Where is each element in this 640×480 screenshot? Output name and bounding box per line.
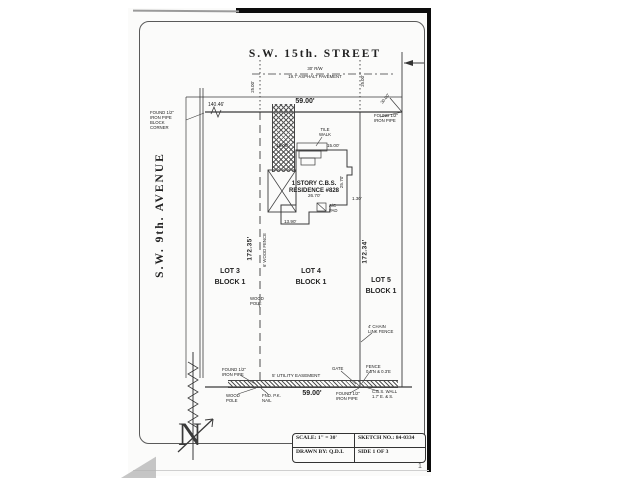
ac-pad-label: A/C PAD [329,203,338,213]
marker-se-iron-pipe: FOUND 1/2" IRON PIPE [336,391,360,401]
dim-house-wing: 13.90' [284,219,296,225]
chain-fence-line2: LINK FENCE [368,329,393,334]
marker-ne-line2: IRON PIPE [374,118,398,123]
lot4-block: BLOCK 1 [286,277,336,288]
title-block-drawn-by: DRAWN BY: Q.D.I. [293,448,355,462]
avenue-edge-lines [186,88,203,378]
dim-house-front-right: 15.00' [327,143,339,149]
dim-west-depth: 172.35' [247,229,256,269]
avenue-name: S.W. 9th. AVENUE [154,150,168,280]
dim-rear-width: 59.00' [292,390,332,398]
marker-se-gate: GATE [332,366,343,371]
tile-walk-label: TILE WALK [314,127,336,137]
gravel-drive-hatch [272,104,295,172]
chain-link-fence-label: 4' CHAIN LINK FENCE [368,324,393,334]
marker-sw-iron-pipe: FOUND 1/2" IRON PIPE [222,367,246,377]
marker-sw-wood-pole: WOOD POLE [226,393,240,403]
wood-pole-line2: POLE [250,301,264,306]
left-arrow-icon [404,60,413,66]
wood-fence-label: 6' WOOD FENCE [262,222,268,278]
se-wall-line2: 1.7' E. & S. [372,394,397,399]
dim-house-side: 25.70' [339,168,345,196]
se-fence-line2: 0.3'N & 0.3'E [366,369,391,374]
lot3-label: LOT 3 BLOCK 1 [205,266,255,288]
marker-ne-iron-pipe: FOUND 1/2" IRON PIPE [374,113,398,123]
marker-nw-line4: CORNER [150,125,174,130]
dim-front-width: 59.00' [285,98,325,106]
block-north-line [205,107,402,117]
compass-north-letter: N [178,417,202,454]
marker-se-fence: FENCE 0.3'N & 0.3'E [366,364,391,374]
ac-pad-line2: PAD [329,208,338,213]
sw-nail-line2: NAIL [262,398,281,403]
dim-east-depth: 172.34' [362,232,371,272]
wood-pole-label: WOOD POLE [250,296,264,306]
title-block-side: SIDE 1 OF 3 [355,448,425,462]
street-name: S.W. 15th. STREET [240,48,390,62]
scan-canvas: S.W. 15th. STREET 30' R/W 19.7' ASPHALT … [0,0,640,480]
lot5-label: LOT 5 BLOCK 1 [356,275,406,297]
marker-se-cbs-wall: C.B.S. WALL 1.7' E. & S. [372,389,397,399]
lot4-name: LOT 4 [286,266,336,277]
tile-walk-line2: WALK [314,132,336,137]
marker-sw-line2: IRON PIPE [222,372,246,377]
dim-block-tie: 140.46' [208,102,224,108]
lot3-name: LOT 3 [205,266,255,277]
title-block-sketch-no: SKETCH NO.: 84-0334 [355,434,425,448]
lot3-block: BLOCK 1 [205,277,255,288]
marker-se-line2: IRON PIPE [336,396,360,401]
lot4-label: LOT 4 BLOCK 1 [286,266,336,288]
street-rw-note: 30' R/W [290,66,340,71]
marker-nw-block-corner: FOUND 1/2" IRON PIPE BLOCK CORNER [150,110,174,131]
lot5-block: BLOCK 1 [356,286,406,297]
street-pavement-note: 19.7' ASPHALT PAVEMENT [275,74,355,79]
title-block-scale: SCALE: 1" = 30' [293,434,355,448]
title-block: SCALE: 1" = 30' SKETCH NO.: 84-0334 DRAW… [292,433,426,463]
ac-pad-outline [317,203,326,211]
survey-linework [0,0,640,480]
dim-house-front-left: 15.00' [276,143,288,149]
dim-rw-left: 25.00' [250,74,256,100]
residence-line1: 1 STORY C.B.S. [283,181,345,188]
utility-easement-label: 5' UTILITY EASEMENT [272,373,320,379]
cbs-wall-hatch [228,380,398,388]
lot5-name: LOT 5 [356,275,406,286]
pen-mark: 1 [418,463,422,471]
marker-sw-pk-nail: FND. P.K. NAIL [262,393,281,403]
sw-pole-line2: POLE [226,398,240,403]
dim-house-rear: 26.70' [308,193,320,199]
dim-offset: 1.30' [352,196,362,202]
dim-rw-right: 25.00' [360,68,366,94]
entry-steps-outline [297,143,327,165]
